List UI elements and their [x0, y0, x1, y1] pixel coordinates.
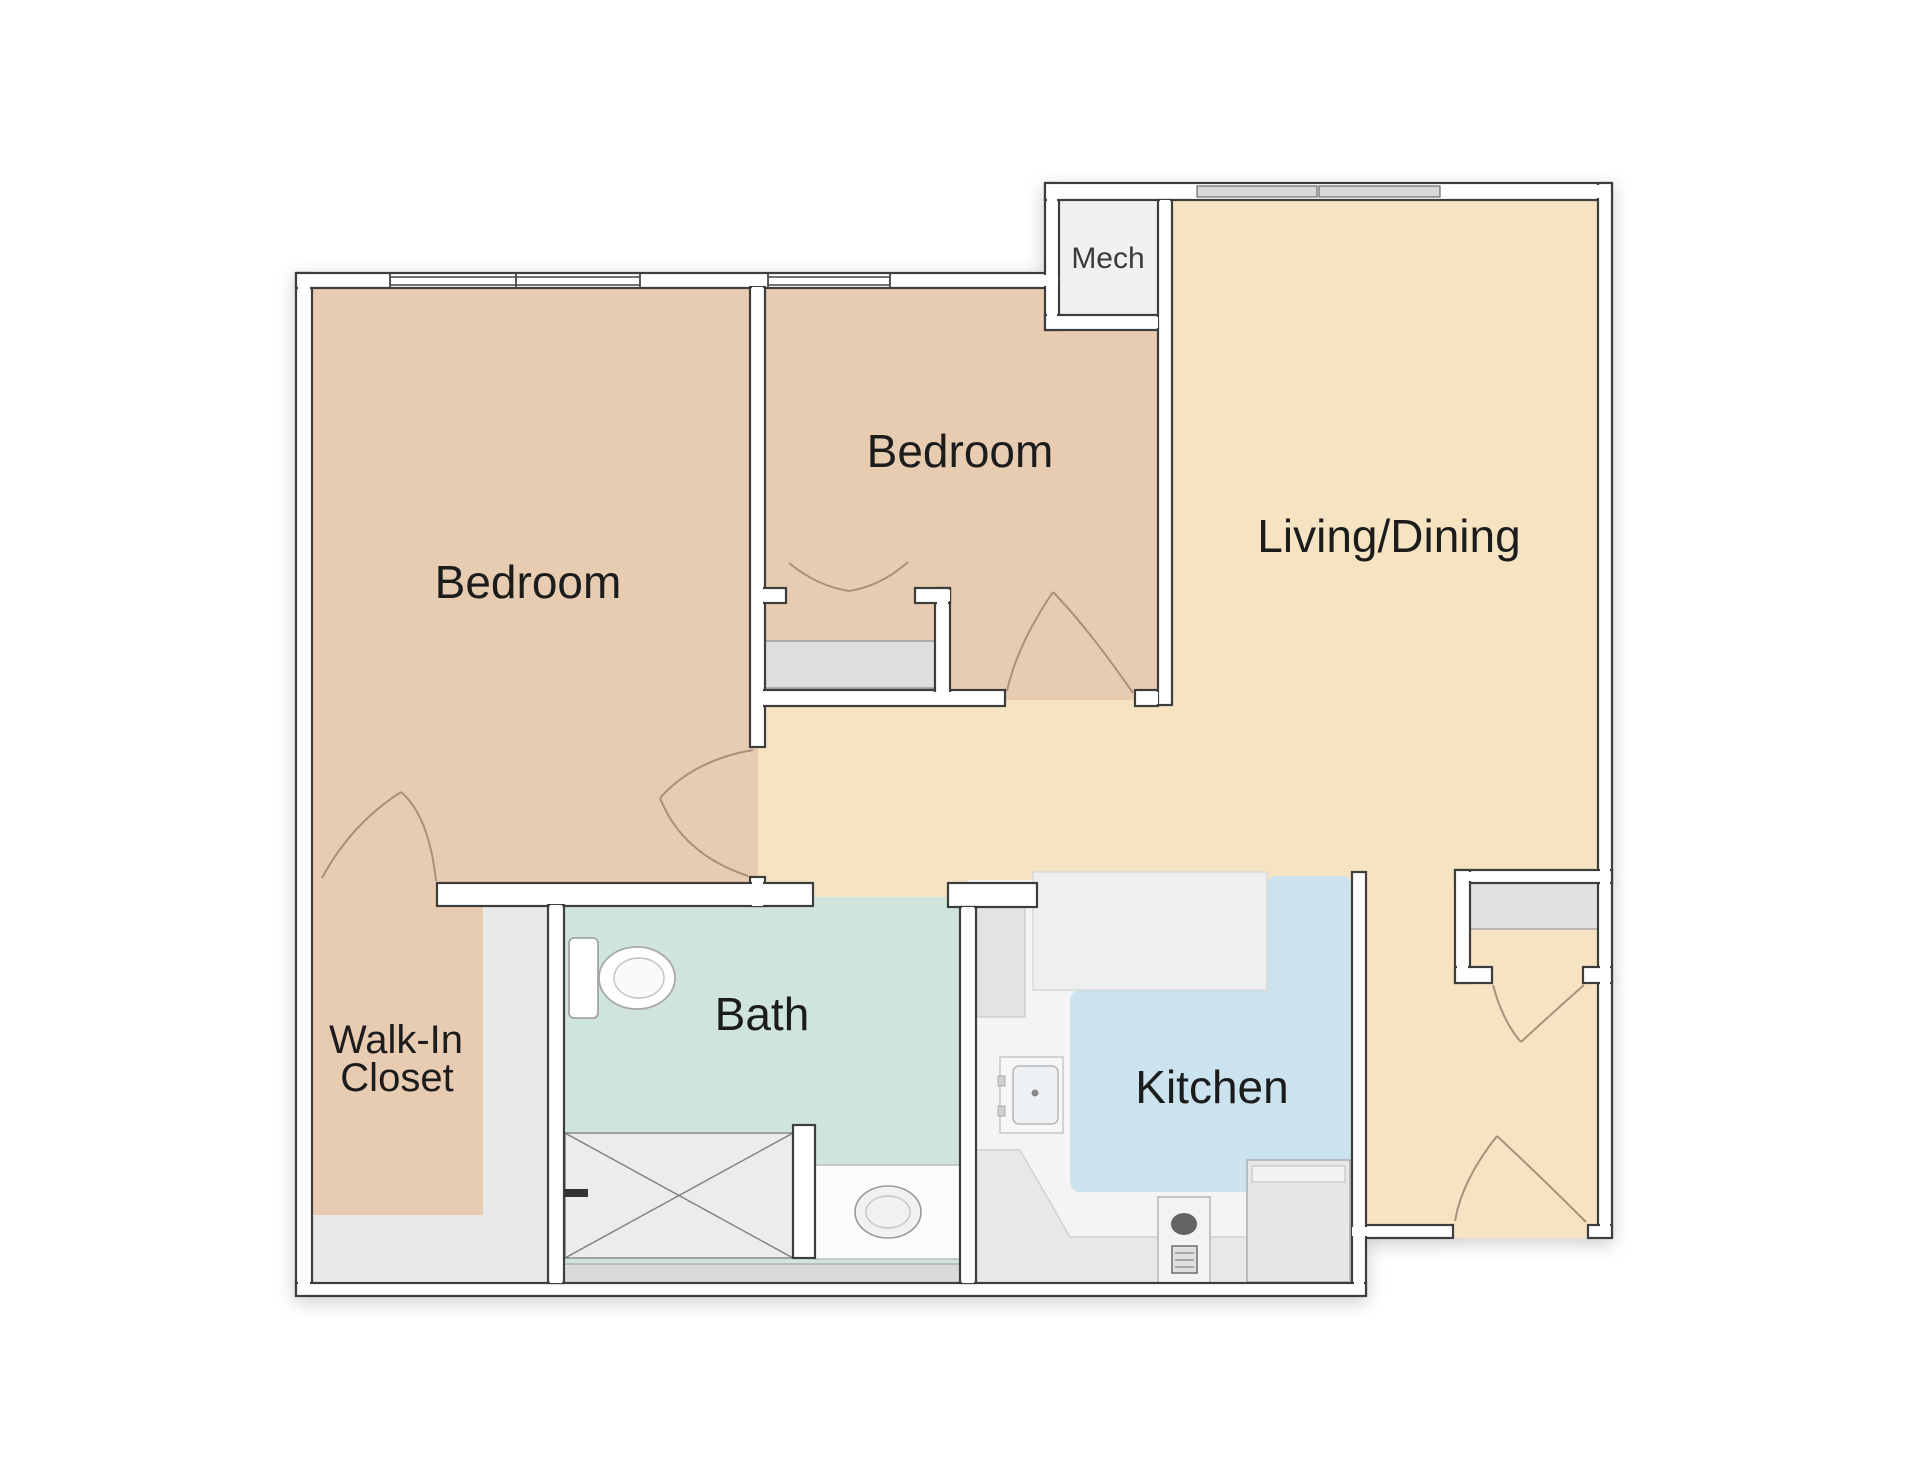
wall-niche-left-core [1457, 872, 1468, 981]
walk-in-closet-label-line-2: Closet [340, 1056, 453, 1100]
entry-closet-shelf [1470, 883, 1598, 929]
kitchen-label: Kitchen [1135, 1061, 1288, 1113]
wall-bed2-bottom-b-core [1137, 692, 1158, 704]
wall-niche-stub-l-core [1457, 969, 1490, 981]
kitchen-counter-peninsula [1033, 872, 1267, 990]
wall-closet-bath-core [550, 905, 562, 1283]
living-dining-window [1197, 186, 1440, 197]
bath-door-threshold-floor [813, 883, 948, 899]
hallway-floor [758, 700, 1166, 890]
bath-vanity [815, 1165, 960, 1259]
wall-outer-left-core [298, 275, 310, 1293]
room-floors [303, 193, 1604, 1290]
kitchen-refrigerator [1247, 1160, 1350, 1282]
wall-bottom-main-core [298, 1285, 1364, 1294]
wall-bed2-closet-jamb-l-core [762, 590, 784, 601]
wall-kitchen-right-core [1354, 874, 1364, 1293]
bedroom-2-label: Bedroom [867, 425, 1054, 477]
bath-label: Bath [715, 988, 810, 1040]
wall-mech-left-core [1047, 185, 1057, 328]
apartment-floor-plan: Bedroom Bedroom Living/Dining Bath Kitch… [296, 183, 1612, 1296]
wall-kitchen-top-core [950, 885, 1035, 905]
bath-shower [561, 1133, 793, 1258]
bedroom-2-window [768, 274, 890, 288]
entry-door-threshold-floor [1453, 1225, 1588, 1238]
kitchen-counter-left [977, 893, 1025, 1017]
wall-bed2-living-core [1160, 200, 1170, 703]
bath-cabinet-strip [563, 1264, 960, 1283]
floor-plan-canvas: Bedroom Bedroom Living/Dining Bath Kitch… [0, 0, 1920, 1484]
wall-mech-bottom-core [1047, 317, 1158, 328]
bedroom-1-window [390, 274, 640, 288]
kitchen-sink [998, 1057, 1063, 1133]
bedroom-1-label: Bedroom [435, 556, 622, 608]
wall-shower-right-core [795, 1127, 813, 1256]
wall-bed2-bottom-a-core [762, 692, 1003, 704]
wall-outer-right-core [1600, 185, 1610, 1235]
floor-plan-page: Bedroom Bedroom Living/Dining Bath Kitch… [0, 0, 1920, 1484]
wall-bedroom-divider-core [752, 287, 763, 745]
bedroom-2-closet-shelf [765, 641, 935, 688]
wall-bed2-closet-jamb-r-core [917, 590, 950, 601]
living-dining-label: Living/Dining [1257, 510, 1520, 562]
wall-bed1-bottom-core [439, 885, 811, 904]
kitchen-stove [1158, 1197, 1210, 1283]
kitchen-floor-east [1267, 876, 1352, 1176]
bath-sink [855, 1186, 921, 1238]
wall-bed2-closet-right-core [937, 590, 948, 698]
wall-bath-right-core [962, 907, 974, 1283]
wall-niche-stub-r-core [1585, 969, 1610, 981]
mech-label: Mech [1071, 242, 1144, 275]
wall-bottom-living-a-core [1352, 1227, 1451, 1236]
wall-bottom-living-b-core [1590, 1227, 1610, 1236]
wall-niche-top-core [1457, 872, 1610, 881]
